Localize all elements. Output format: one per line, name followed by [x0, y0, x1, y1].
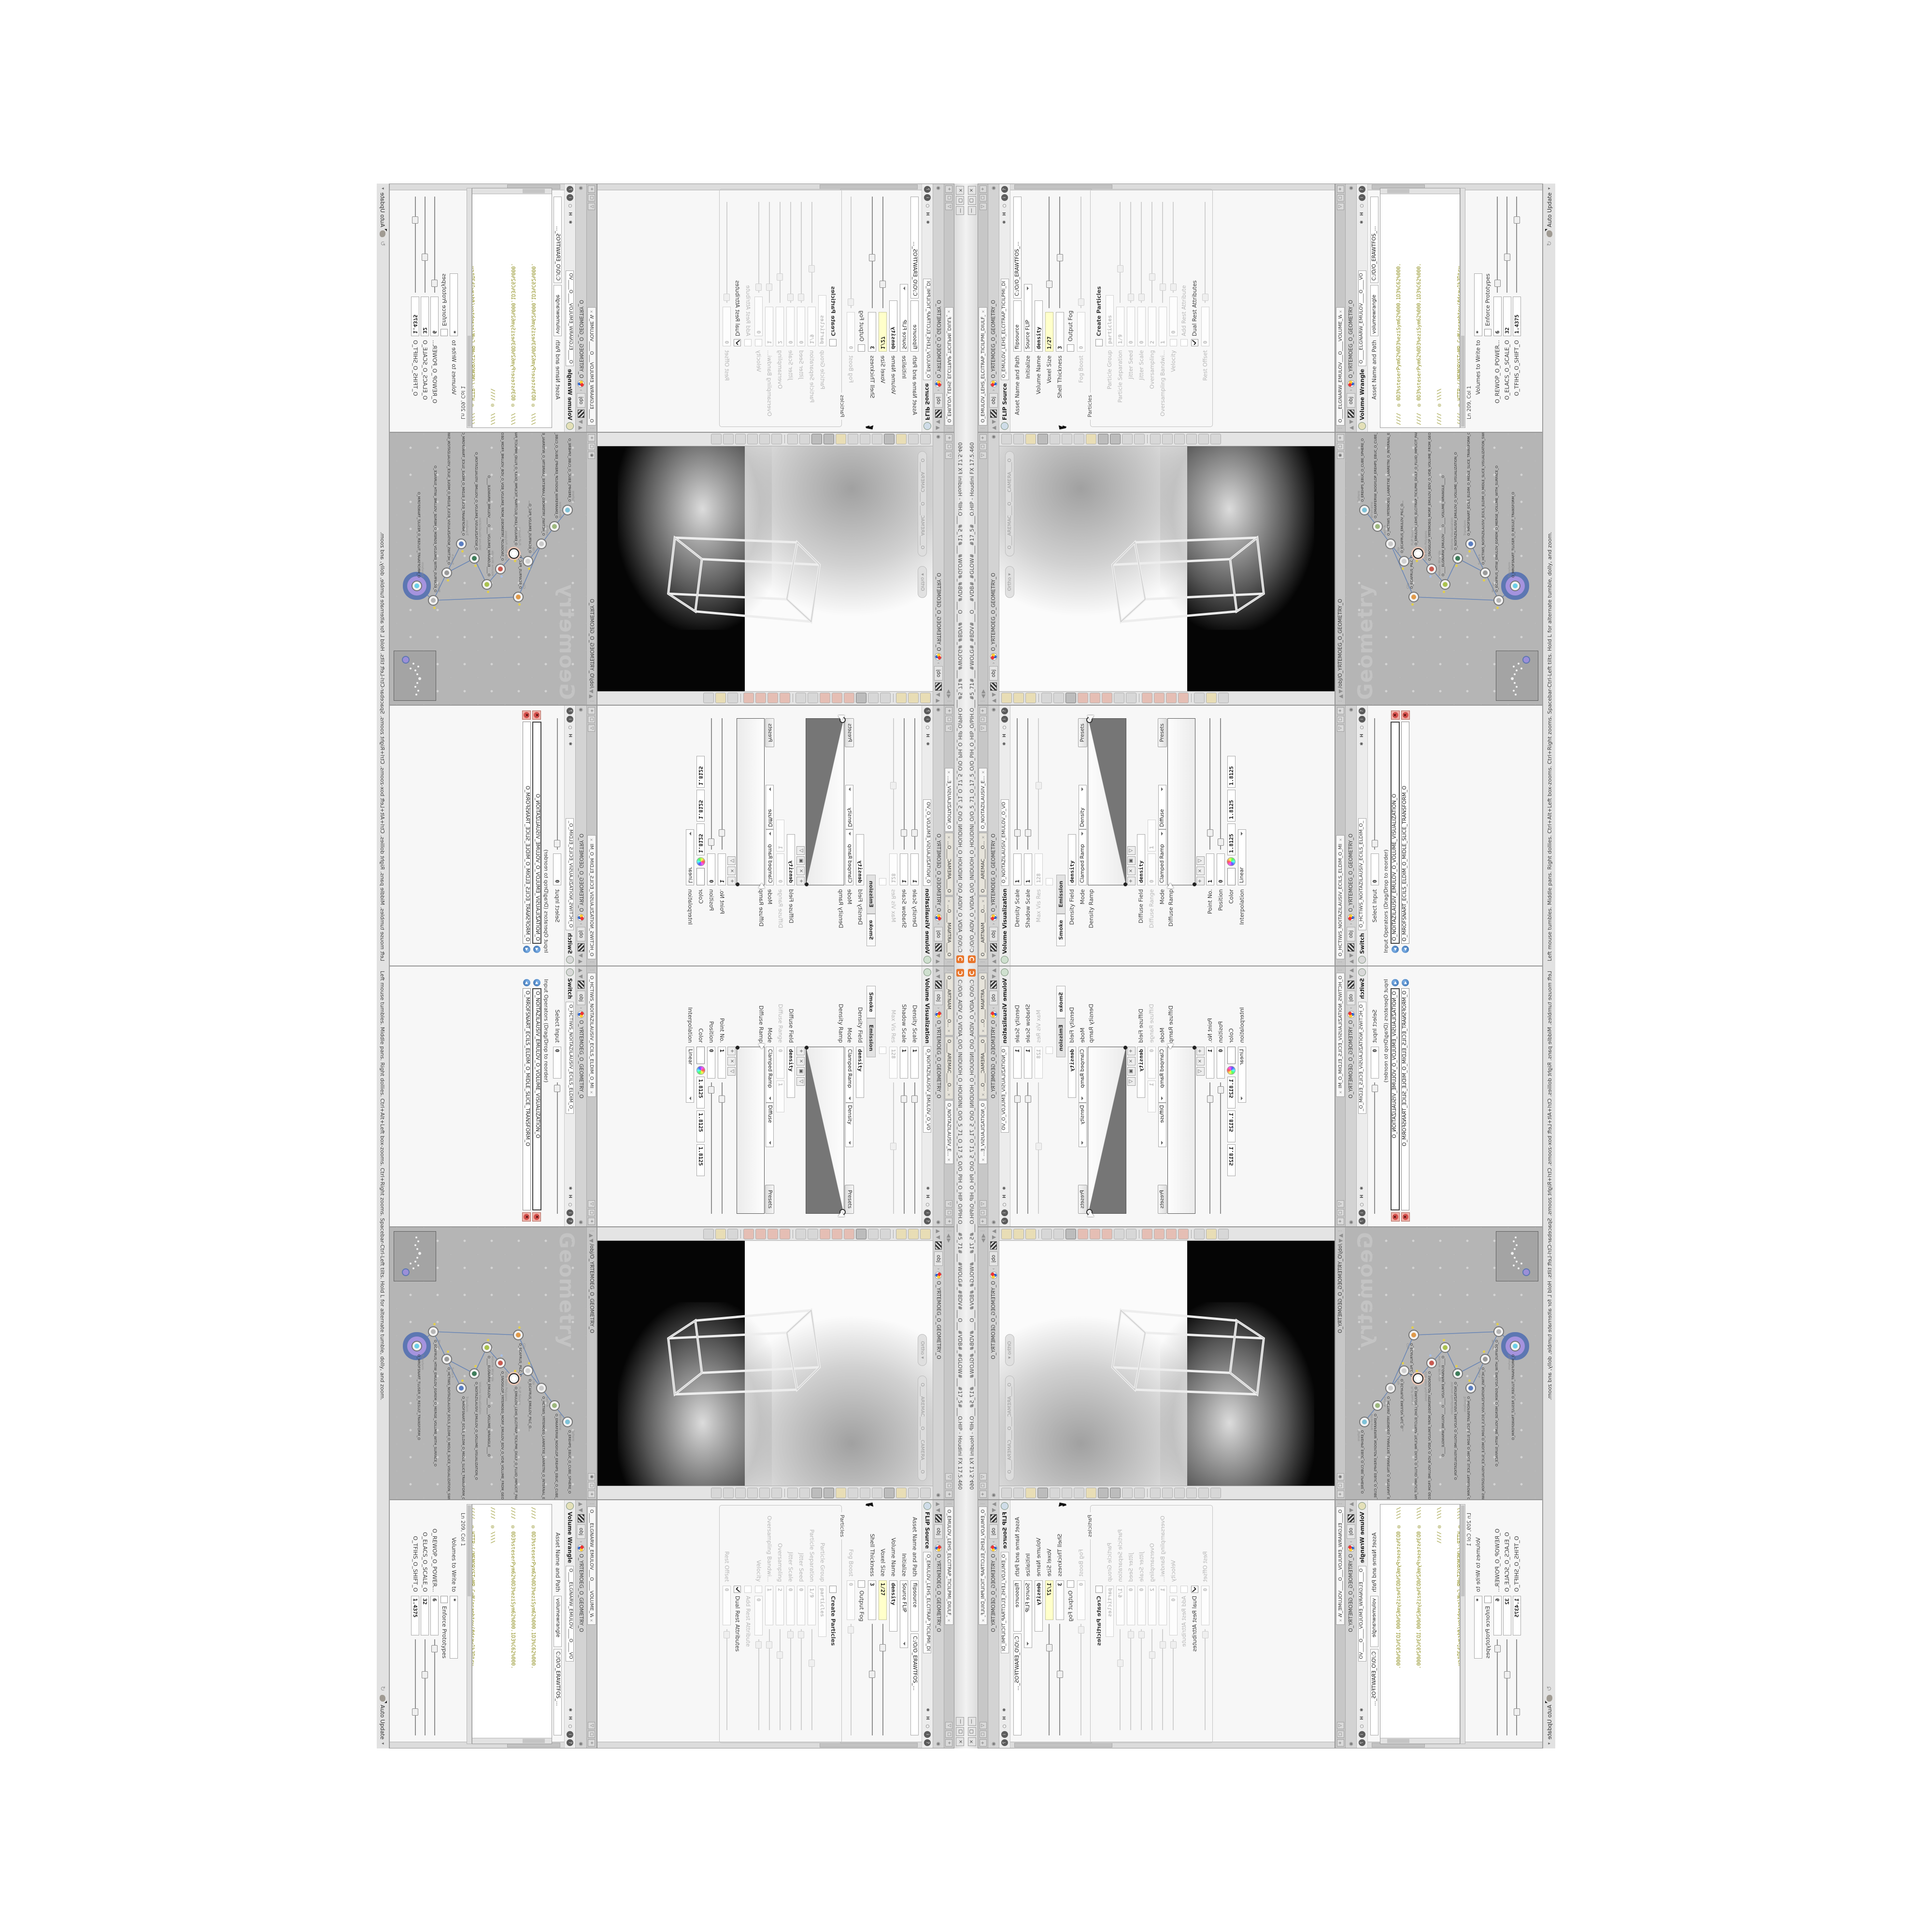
- axis-align-icon[interactable]: [796, 693, 806, 704]
- color-b-field[interactable]: 1.8125: [1227, 756, 1236, 788]
- info-icon[interactable]: i: [924, 716, 931, 723]
- network-node-vdb-from-polygons[interactable]: VDB from PolygonsO_SNOGILOP_YRTEMOEG_MOR…: [1426, 1358, 1437, 1368]
- pane-menu-icon[interactable]: ▽: [588, 1200, 596, 1207]
- memory-usage-icon[interactable]: [380, 1695, 385, 1702]
- gear-icon[interactable]: ✱: [924, 740, 931, 747]
- nav-down-icon[interactable]: ▼: [578, 420, 584, 424]
- rotate-tool-icon[interactable]: [832, 1229, 842, 1239]
- pane-maximize-icon[interactable]: ▢: [980, 443, 987, 450]
- pane-split-icon[interactable]: +: [980, 185, 987, 193]
- network-node-vdb-from-polygons[interactable]: VDB from PolygonsO_SNOGILOP_YRTEMOEG_MOR…: [495, 1358, 506, 1368]
- handles-tool-icon[interactable]: [896, 1229, 907, 1239]
- code-scrollbar[interactable]: [472, 188, 552, 194]
- pane-grip[interactable]: ⋮: [589, 960, 594, 964]
- help-icon[interactable]: ?: [567, 1218, 573, 1224]
- density-mode-dropdown[interactable]: Clamped Ramp: [1079, 1047, 1087, 1103]
- ramp-add-point-button[interactable]: +: [1196, 1047, 1205, 1055]
- reorder-icon[interactable]: ◀: [533, 979, 540, 986]
- view-clip-icon[interactable]: [1110, 1488, 1121, 1498]
- dot-icon[interactable]: [771, 1488, 782, 1498]
- add-rest-checkbox[interactable]: [745, 339, 752, 346]
- pane-split-icon[interactable]: +: [588, 1218, 596, 1225]
- view-pan-icon[interactable]: [703, 1229, 714, 1239]
- tab-switch[interactable]: O_HCTIWS_NOITAZILAUSIV_ECILS_ELDIM_O_MID…: [587, 835, 596, 959]
- key-icon[interactable]: [759, 1488, 770, 1498]
- volume-name-field[interactable]: density: [890, 1580, 898, 1632]
- dot-icon[interactable]: [1150, 434, 1161, 445]
- shift-slider[interactable]: [412, 197, 419, 293]
- view-tool-icon[interactable]: [920, 693, 931, 704]
- pane-maximize-icon[interactable]: ▢: [588, 716, 596, 723]
- node-name-field[interactable]: O_NOITAZILAUSIV_EMULOV_O_VO: [923, 1046, 932, 1133]
- shadow-scale-slider[interactable]: [901, 718, 908, 850]
- help-icon[interactable]: ?: [924, 1739, 931, 1746]
- jitter-seed-field[interactable]: 0: [797, 307, 806, 346]
- network-node-transform[interactable]: TransformO_MROFSNART_TLUSER_O_RESULT_TRA…: [1510, 1341, 1520, 1351]
- diffuse-channel-dropdown[interactable]: Diffuse: [766, 1103, 774, 1147]
- nav-up-icon[interactable]: ▲: [936, 699, 942, 703]
- node-name-field[interactable]: O_EMULOV_LEHS_ELCITRAP_TICILPMI_DI: [1001, 279, 1009, 381]
- window-close-button[interactable]: ×: [968, 1737, 976, 1746]
- density-mode-dropdown[interactable]: Clamped Ramp: [846, 1047, 854, 1103]
- scale-tool-icon[interactable]: [1102, 693, 1112, 704]
- handles-tool-icon[interactable]: [1025, 693, 1036, 704]
- pane-grip[interactable]: ⋮: [1338, 1502, 1343, 1506]
- network-node-vdb-from-polygons[interactable]: VDB from PolygonsO_SNOGILOP_YRTEMOEG_MOR…: [495, 564, 506, 574]
- folder-tab-emission[interactable]: Emission: [1056, 875, 1065, 914]
- pane-split-icon[interactable]: +: [980, 707, 987, 714]
- node-name-field[interactable]: O_HCTIWS_NOITAZILAUSIV_ECILS_ELDIM_O_: [566, 818, 574, 930]
- diffuse-presets-button[interactable]: Presets: [1158, 1185, 1167, 1214]
- voxel-size-field[interactable]: 1/27: [879, 312, 887, 352]
- tab-scroll-left-icon[interactable]: ◀: [980, 1234, 986, 1237]
- ramp-flip-button[interactable]: ▽: [1127, 1077, 1136, 1086]
- rotate-tool-icon[interactable]: [1090, 1229, 1100, 1239]
- material-shade-icon[interactable]: [1062, 434, 1072, 445]
- diffuse-field-input[interactable]: density: [787, 834, 796, 885]
- volume-name-field[interactable]: density: [1035, 1580, 1043, 1632]
- breadcrumb-geometry[interactable]: O_YRTEMOEG_O_GEOMETRY_O: [991, 1020, 996, 1098]
- viewport-canvas[interactable]: Ortho ▾ O____AREMAC____O____CAMERA____O: [999, 1241, 1335, 1486]
- ortho-pill[interactable]: Ortho ▾: [1005, 566, 1014, 598]
- ramp-point[interactable]: [736, 1046, 739, 1050]
- snapshot-icon[interactable]: [990, 682, 997, 691]
- pin-icon[interactable]: ◉: [991, 186, 996, 190]
- network-node-merge[interactable]: MergeO_ECAFRUS_HTIW_EMULOV_EGREM_O_MERGE…: [428, 595, 439, 606]
- density-scale-field[interactable]: 1: [911, 853, 919, 885]
- gear-icon[interactable]: ✱: [924, 219, 931, 226]
- jitter-scale-slider[interactable]: [1138, 202, 1145, 303]
- material-shade-icon[interactable]: [860, 1488, 870, 1498]
- position-slider[interactable]: [1217, 1082, 1224, 1214]
- info-icon[interactable]: i: [1359, 716, 1365, 723]
- pane-menu-icon[interactable]: ▽: [946, 1473, 953, 1480]
- breadcrumb-obj[interactable]: obj: [934, 991, 943, 1005]
- nav-down-icon[interactable]: ▼: [936, 953, 942, 957]
- diffuse-ramp-widget[interactable]: [737, 1047, 765, 1214]
- code-scrollbar[interactable]: [472, 1738, 552, 1744]
- max-vis-res-field[interactable]: 128: [1035, 853, 1043, 885]
- velocity-checkbox[interactable]: [755, 339, 763, 346]
- particle-separation-field[interactable]: 1/9: [808, 1586, 816, 1625]
- breadcrumb-obj[interactable]: obj: [989, 991, 998, 1005]
- window-maximize-button[interactable]: ▢: [968, 196, 976, 205]
- doc-hand-icon[interactable]: [711, 434, 722, 445]
- power-field[interactable]: 6: [1493, 297, 1502, 336]
- rest-offset-slider[interactable]: [724, 202, 730, 303]
- position-slider[interactable]: [708, 718, 715, 850]
- tab-flip-source[interactable]: O_EMULOV_LEHS_ELCITRAP_TICILPMI_DIULF_O_…: [945, 307, 953, 426]
- position-slider[interactable]: [1217, 718, 1224, 850]
- info-icon[interactable]: i: [924, 1209, 931, 1216]
- delete-input-button[interactable]: [1391, 1212, 1400, 1222]
- ramp-flip-button[interactable]: ▽: [796, 846, 805, 855]
- breadcrumb-geometry[interactable]: O_YRTEMOEG_O_GEOMETRY_O: [991, 300, 996, 378]
- delete-input-button[interactable]: [1401, 710, 1410, 720]
- input-operator-field[interactable]: O_MROFSNART_ECILS_ELDIM_O_MIDLE_SLICE_TR…: [1401, 722, 1409, 944]
- pane-split-icon[interactable]: +: [946, 1218, 953, 1225]
- view-pan-icon[interactable]: [1218, 1229, 1229, 1239]
- view-pan-icon[interactable]: [1218, 693, 1229, 704]
- output-fog-checkbox[interactable]: [1067, 1580, 1074, 1588]
- network-node-volume-visualization[interactable]: Volume VisualizationO_NOITAZILAUSIV_EMUL…: [469, 553, 480, 564]
- ramp-marker[interactable]: [758, 1044, 765, 1049]
- diffuse-mode-dropdown[interactable]: Clamped Ramp: [766, 829, 774, 885]
- gear-icon[interactable]: ✱: [1001, 740, 1008, 747]
- back-icon[interactable]: [1041, 693, 1052, 704]
- density-field-input[interactable]: density: [1068, 834, 1076, 885]
- position-field[interactable]: 0: [708, 853, 716, 885]
- node-name-field[interactable]: O____ELGNARW_EMULOV____O____VO: [566, 1566, 574, 1662]
- pane-menu-icon[interactable]: ▽: [1337, 1722, 1344, 1729]
- play-options-icon[interactable]: [1194, 693, 1205, 704]
- ramp-delete-point-button[interactable]: ×: [727, 867, 736, 875]
- diffuse-channel-dropdown[interactable]: Diffuse: [1158, 785, 1166, 829]
- breadcrumb-obj[interactable]: obj: [934, 393, 943, 408]
- code-h-scrollbar[interactable]: [467, 1504, 472, 1744]
- code-h-scrollbar[interactable]: [467, 188, 472, 428]
- pane-grip[interactable]: ⋮: [1338, 1229, 1343, 1233]
- pane-menu-icon[interactable]: ▽: [946, 724, 953, 732]
- point-markers-icon[interactable]: [836, 434, 846, 445]
- window-minimize-button[interactable]: —: [968, 206, 976, 215]
- initialize-dropdown[interactable]: Source FLIP: [1024, 1580, 1032, 1648]
- density-presets-button[interactable]: Presets: [1078, 1185, 1087, 1214]
- pane-maximize-icon[interactable]: ▢: [1337, 1209, 1344, 1216]
- view-clip-icon[interactable]: [811, 434, 822, 445]
- color-r-field[interactable]: 1.8125: [697, 1077, 705, 1108]
- viewport-canvas[interactable]: Ortho ▾ O____AREMAC____O____CAMERA____O: [597, 446, 933, 691]
- network-node-merge[interactable]: MergeO_ECAFRUS_HTIW_EMULOV_EGREM_O_MERGE…: [1493, 595, 1504, 606]
- close-icon[interactable]: ×: [981, 836, 985, 839]
- pane-split-icon[interactable]: +: [946, 1491, 953, 1498]
- diffuse-range-min-field[interactable]: 0: [1148, 853, 1156, 885]
- network-node-transform[interactable]: TransformO_MROFSNART_TLUSER_O_RESULT_TRA…: [412, 581, 422, 591]
- box-select-icon[interactable]: [1065, 1229, 1076, 1239]
- search-icon[interactable]: ○: [924, 1723, 931, 1730]
- pane-maximize-icon[interactable]: ▢: [946, 1731, 953, 1738]
- position-field[interactable]: 0: [1217, 853, 1225, 885]
- velocity-field[interactable]: 0: [1169, 297, 1178, 336]
- pane-maximize-icon[interactable]: ▢: [588, 194, 596, 201]
- key-icon[interactable]: [1162, 434, 1173, 445]
- node-name-field[interactable]: O____ELGNARW_EMULOV____O____VO: [1358, 1566, 1366, 1662]
- pane-grip[interactable]: ⋮: [947, 426, 952, 430]
- play-options-icon[interactable]: [727, 693, 738, 704]
- ramp-flip-button[interactable]: ▽: [727, 1067, 736, 1076]
- network-node-volume-visualization[interactable]: Volume VisualizationO_NOITAZILAUSIV_EMUL…: [1452, 1368, 1463, 1379]
- hscript-icon[interactable]: H: [1001, 211, 1008, 217]
- particle-separation-field[interactable]: 1/9: [808, 307, 816, 346]
- network-node-volume-visualization[interactable]: Volume VisualizationO_NOITAZILAUSIV_EMUL…: [469, 1368, 480, 1379]
- window-close-button[interactable]: ×: [956, 1737, 965, 1746]
- voxel-size-field[interactable]: 1/27: [879, 1580, 887, 1620]
- scale-field[interactable]: 32: [421, 297, 429, 336]
- network-node-volume-wrangle[interactable]: Volume WrangleO____ELGNARW_EMULOV____O__…: [1440, 579, 1450, 590]
- network-node-merge[interactable]: MergeO_ECAFRUS_HTIW_EMULOV_EGREM_O_MERGE…: [1493, 1326, 1504, 1337]
- diffuse-range-max-field[interactable]: 1: [777, 1080, 785, 1112]
- voxel-size-slider[interactable]: [1046, 1624, 1052, 1735]
- fog-boost-slider[interactable]: [1078, 197, 1084, 308]
- axis-align-icon[interactable]: [1126, 693, 1136, 704]
- diffuse-channel-dropdown[interactable]: Diffuse: [766, 785, 774, 829]
- node-name-field[interactable]: O_HCTIWS_NOITAZILAUSIV_ECILS_ELDIM_O_: [1358, 1002, 1366, 1113]
- shade-mode-icon[interactable]: [884, 434, 895, 445]
- jitter-scale-field[interactable]: 0: [1137, 307, 1146, 346]
- probe-icon[interactable]: [1174, 1488, 1185, 1498]
- translate-tool-icon[interactable]: [1078, 693, 1088, 704]
- dual-rest-checkbox[interactable]: [1191, 1586, 1198, 1593]
- voxel-size-slider[interactable]: [880, 1624, 886, 1735]
- pane-split-icon[interactable]: +: [1337, 1491, 1344, 1498]
- select-input-field[interactable]: 0: [1371, 1047, 1379, 1079]
- shade-mode-icon[interactable]: [1037, 1488, 1048, 1498]
- nav-down-icon[interactable]: ▼: [936, 1508, 942, 1512]
- hscript-icon[interactable]: H: [1001, 1193, 1008, 1200]
- hscript-icon[interactable]: H: [924, 1193, 931, 1200]
- color-r-field[interactable]: 1.8125: [697, 824, 705, 855]
- brush-icon[interactable]: [1206, 693, 1217, 704]
- ramp-flip-button[interactable]: ▽: [1196, 1067, 1205, 1076]
- flask-flag-icon[interactable]: [1134, 1488, 1145, 1498]
- tab-scroll-right-icon[interactable]: ▶: [946, 1238, 952, 1242]
- node-name-field[interactable]: O_NOITAZILAUSIV_EMULOV_O_VO: [1001, 799, 1009, 886]
- tab-visualization[interactable]: O_NOITAZILAUSIV_E...×: [945, 768, 953, 832]
- select-tool-icon[interactable]: [1013, 1229, 1024, 1239]
- nav-up-icon[interactable]: ▲: [991, 968, 997, 972]
- network-node-volume-wrangle[interactable]: Volume WrangleO____ELGNARW_EMULOV____O__…: [1440, 1342, 1450, 1353]
- breadcrumb-geometry[interactable]: O_YRTEMOEG_O_GEOMETRY_O: [991, 1281, 996, 1359]
- nav-down-icon[interactable]: ▼: [1337, 1238, 1344, 1242]
- delete-input-button[interactable]: [523, 1212, 531, 1222]
- particle-group-field[interactable]: particles: [819, 295, 827, 346]
- flask-flag-icon[interactable]: [1134, 434, 1145, 445]
- snapshot-icon[interactable]: [578, 943, 584, 952]
- jitter-scale-slider[interactable]: [1138, 1629, 1145, 1730]
- color-b-field[interactable]: 1.8125: [697, 756, 705, 788]
- enforce-prototypes-checkbox[interactable]: [1484, 1596, 1492, 1603]
- pin-icon[interactable]: ◉: [991, 1742, 996, 1746]
- nav-up-icon[interactable]: ▲: [1337, 695, 1344, 698]
- jitter-seed-slider[interactable]: [798, 1629, 805, 1730]
- select-visible-icon[interactable]: [1013, 434, 1024, 445]
- pin-icon[interactable]: ◉: [936, 708, 941, 712]
- select-tool-icon[interactable]: [908, 1229, 919, 1239]
- ortho-pill[interactable]: Ortho ▾: [918, 566, 927, 598]
- pane-maximize-icon[interactable]: ▢: [1337, 194, 1344, 201]
- scale-tool-icon[interactable]: [820, 693, 830, 704]
- pane-grip[interactable]: ⋮: [1338, 960, 1343, 964]
- pane-maximize-icon[interactable]: ▢: [588, 1731, 596, 1738]
- ramp-delete-point-button[interactable]: ×: [1196, 867, 1205, 875]
- network-node-transform[interactable]: TransformO_MROFSNART_ECILS_ELDIM_O_MIDLE…: [456, 539, 467, 549]
- breadcrumb-geometry[interactable]: O_YRTEMOEG_O_GEOMETRY_O: [991, 834, 996, 912]
- snap-point-icon[interactable]: [1154, 693, 1165, 704]
- network-node-switch[interactable]: SwitchO_HCTIWS_NOITAZILAUSIV_ECILS_ELDIM…: [1480, 568, 1491, 578]
- help-icon[interactable]: ?: [1001, 1739, 1008, 1746]
- color-g-field[interactable]: 1.8125: [1227, 1110, 1236, 1142]
- pane-split-icon[interactable]: +: [946, 185, 953, 193]
- search-icon[interactable]: ○: [1359, 1723, 1365, 1730]
- ramp-view-button[interactable]: ▣: [1127, 856, 1136, 865]
- asset-path-field[interactable]: C:/O/O_ERAWTFOS_...: [1370, 197, 1378, 283]
- ramp-point[interactable]: [1193, 1046, 1196, 1050]
- nav-down-icon[interactable]: ▼: [589, 689, 595, 693]
- tab-mantra[interactable]: O____ARTNAM____O...×: [945, 896, 953, 959]
- diffuse-range-min-field[interactable]: 0: [1148, 1047, 1156, 1079]
- pane-maximize-icon[interactable]: ▢: [1337, 1731, 1344, 1738]
- tab-switch[interactable]: O_HCTIWS_NOITAZILAUSIV_ECILS_ELDIM_O_MID…: [1336, 973, 1345, 1097]
- tab-scroll-left-icon[interactable]: ◀: [946, 1234, 952, 1237]
- hscript-icon[interactable]: H: [1359, 1715, 1365, 1721]
- flask-flag-icon[interactable]: [787, 434, 798, 445]
- max-vis-res-toggle[interactable]: [880, 878, 887, 885]
- color-swatch[interactable]: [1227, 1047, 1236, 1064]
- view-tool-icon[interactable]: [920, 1229, 931, 1239]
- rest-offset-field[interactable]: 0: [723, 1586, 731, 1625]
- view-clip-icon[interactable]: [811, 1488, 822, 1498]
- translate-tool-icon[interactable]: [844, 1229, 854, 1239]
- particle-group-field[interactable]: particles: [1106, 1586, 1114, 1637]
- pane-split-icon[interactable]: +: [946, 1739, 953, 1747]
- pin-icon[interactable]: ◉: [936, 435, 941, 439]
- nav-down-icon[interactable]: ▼: [991, 953, 997, 957]
- snapshot-icon[interactable]: [935, 980, 942, 989]
- pane-grip[interactable]: ⋮: [1338, 426, 1343, 430]
- network-node-transform[interactable]: TransformO_MROFSNART_ECILS_ELDIM_O_MIDLE…: [1465, 539, 1476, 549]
- help-icon[interactable]: ?: [1001, 1218, 1008, 1224]
- density-channel-dropdown[interactable]: Density: [846, 1103, 854, 1147]
- cook-update-icon[interactable]: ↻: [1546, 1685, 1553, 1692]
- ramp-point[interactable]: [1123, 882, 1127, 886]
- folder-tab-emission[interactable]: Emission: [867, 875, 876, 914]
- pane-split-icon[interactable]: +: [1337, 434, 1344, 441]
- pane-menu-icon[interactable]: ▽: [946, 452, 953, 459]
- pin-icon[interactable]: ◉: [991, 708, 996, 712]
- voxel-size-field[interactable]: 1/27: [1045, 1580, 1053, 1620]
- pane-split-icon[interactable]: +: [588, 1739, 596, 1747]
- window-minimize-button[interactable]: —: [956, 1717, 965, 1726]
- close-icon[interactable]: ×: [947, 1029, 952, 1033]
- volumes-to-write-field[interactable]: *: [450, 1596, 458, 1659]
- add-rest-checkbox[interactable]: [745, 1586, 752, 1593]
- collapse-icon[interactable]: [1001, 434, 1012, 445]
- pane-maximize-icon[interactable]: ▢: [946, 443, 953, 450]
- nav-down-icon[interactable]: ▼: [1348, 953, 1354, 957]
- network-node-switch[interactable]: SwitchO_HCTIWS_NOITAZILAUSIV_ECILS_ELDIM…: [1480, 1354, 1491, 1364]
- select-tool-icon[interactable]: [1013, 693, 1024, 704]
- help-icon[interactable]: ?: [924, 708, 931, 714]
- nav-up-icon[interactable]: ▲: [936, 1229, 942, 1233]
- node-name-field[interactable]: O____ELGNARW_EMULOV____O____VO: [1358, 270, 1366, 366]
- power-slider[interactable]: [1494, 197, 1501, 293]
- asset-path-field[interactable]: C:/O/O_ERAWTFOS_...: [554, 1649, 562, 1735]
- hscript-icon[interactable]: H: [1001, 732, 1008, 739]
- network-canvas[interactable]: Geometry SphereO_EREHPS_EBUC_O_CUBE_SPHE…: [1346, 433, 1542, 705]
- dot-icon[interactable]: [771, 434, 782, 445]
- network-path[interactable]: /obj/O_YRTEMOEG_O_GEOMETRY_O: [1337, 1244, 1343, 1333]
- network-node-clip[interactable]: ClipO_ECAFRUS_PILC_O...: [1408, 592, 1419, 602]
- velocity-field[interactable]: 0: [755, 1596, 763, 1635]
- density-ramp-widget[interactable]: [1088, 1047, 1126, 1214]
- fog-boost-field[interactable]: 0: [1077, 1580, 1085, 1620]
- ortho-pill[interactable]: Ortho ▾: [918, 1334, 927, 1366]
- box-select-icon[interactable]: [856, 693, 867, 704]
- nav-up-icon[interactable]: ▲: [936, 1502, 942, 1506]
- snap-multi-icon[interactable]: [743, 693, 754, 704]
- pane-maximize-icon[interactable]: ▢: [946, 1209, 953, 1216]
- pane-split-icon[interactable]: +: [980, 1739, 987, 1747]
- fog-boost-slider[interactable]: [848, 1624, 854, 1735]
- diffuse-ramp-widget[interactable]: [1167, 718, 1195, 885]
- density-scale-field[interactable]: 1: [911, 1047, 919, 1079]
- density-mode-dropdown[interactable]: Clamped Ramp: [846, 829, 854, 885]
- code-h-scrollbar[interactable]: [1460, 188, 1465, 428]
- tab-volume-wrangle[interactable]: O____ELGNARW_EMULOV___O____VOLUME_WRANGL…: [1336, 1506, 1345, 1625]
- camera-pill[interactable]: O____AREMAC____O____CAMERA____O: [1005, 451, 1014, 556]
- memory-usage-icon[interactable]: [1547, 1695, 1552, 1702]
- create-particles-checkbox[interactable]: [830, 339, 837, 346]
- power-field[interactable]: 6: [431, 1596, 439, 1635]
- view-adapt-icon[interactable]: [1098, 1488, 1108, 1498]
- pane-grip[interactable]: ⋮: [980, 426, 985, 430]
- close-icon[interactable]: ×: [1338, 310, 1343, 313]
- shadow-scale-slider[interactable]: [1024, 1082, 1031, 1214]
- folder-tab-smoke[interactable]: Smoke: [1056, 986, 1065, 1018]
- reorder-icon[interactable]: ◀: [1392, 946, 1399, 953]
- select-input-field[interactable]: 0: [554, 1047, 562, 1079]
- fog-boost-slider[interactable]: [1078, 1624, 1084, 1735]
- asset-name-field[interactable]: volumewrangle: [1370, 285, 1378, 336]
- pin-icon[interactable]: ◉: [588, 1473, 596, 1480]
- pin-icon[interactable]: ◉: [1349, 1220, 1354, 1224]
- tab-camera[interactable]: O____AREMAC____O...×: [945, 1037, 953, 1099]
- hscript-icon[interactable]: H: [1001, 1715, 1008, 1721]
- help-icon[interactable]: ?: [924, 186, 931, 193]
- color-b-field[interactable]: 1.8125: [697, 1144, 705, 1176]
- pane-grip[interactable]: ⋮: [980, 968, 985, 972]
- ramp-marker[interactable]: [838, 715, 845, 721]
- breadcrumb-geometry[interactable]: O_YRTEMOEG_O_GEOMETRY_O: [1348, 834, 1354, 912]
- particle-separation-field[interactable]: 1/9: [1116, 1586, 1124, 1625]
- network-node-switch[interactable]: SwitchO_HCTIWS_YRTEMOEG_LANRETXE_LANRETN…: [536, 539, 547, 549]
- dual-rest-checkbox[interactable]: [734, 339, 741, 346]
- pane-maximize-icon[interactable]: ▢: [1337, 716, 1344, 723]
- scale-field[interactable]: 32: [1503, 1596, 1511, 1635]
- initialize-dropdown[interactable]: Source FLIP: [900, 1580, 909, 1648]
- gear-icon[interactable]: ✱: [1001, 1706, 1008, 1713]
- ramp-delete-point-button[interactable]: ×: [1196, 1057, 1205, 1065]
